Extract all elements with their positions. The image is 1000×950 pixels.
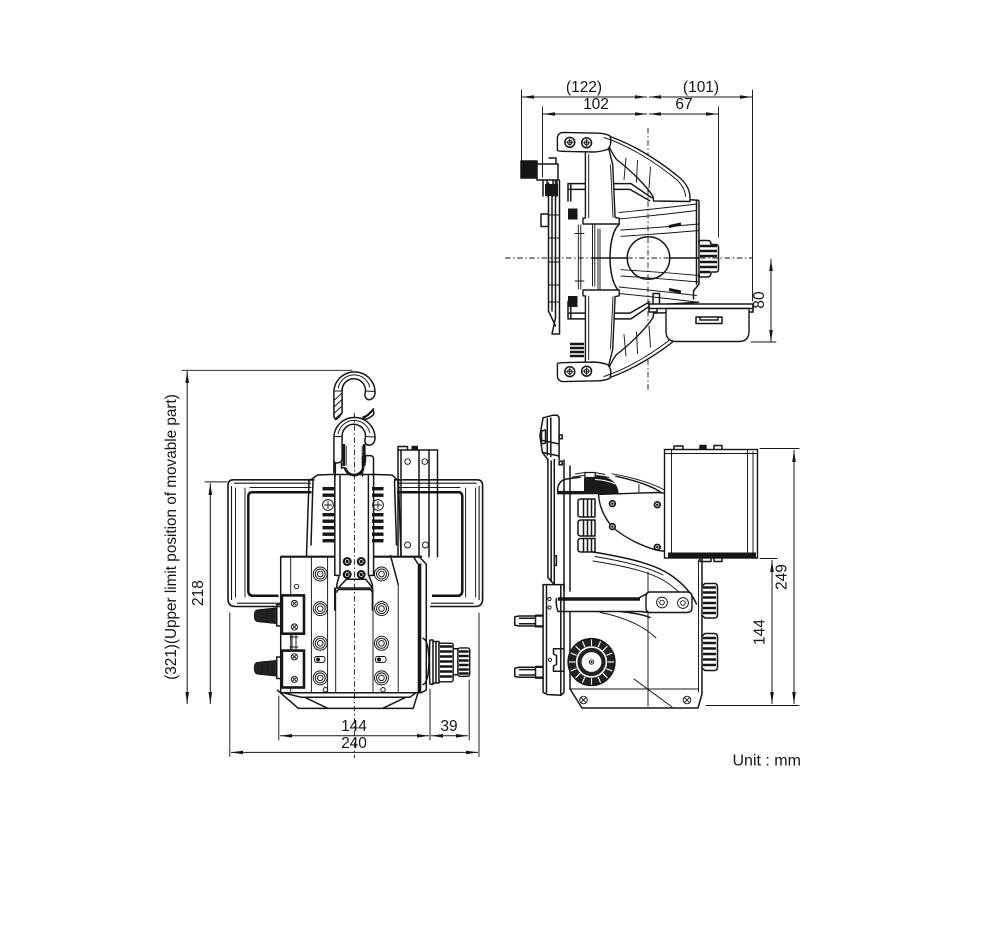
svg-text:Unit : mm: Unit : mm [733,753,801,770]
svg-text:240: 240 [341,735,367,752]
svg-text:249: 249 [774,564,791,590]
svg-text:218: 218 [190,580,207,606]
svg-text:39: 39 [440,718,457,735]
svg-text:102: 102 [583,96,609,113]
svg-text:67: 67 [675,96,692,113]
svg-text:144: 144 [752,619,769,645]
svg-text:(101): (101) [683,79,719,96]
svg-text:(321)(Upper limit position of: (321)(Upper limit position of movable pa… [163,394,180,680]
svg-text:(122): (122) [566,79,602,96]
svg-text:144: 144 [341,718,367,735]
